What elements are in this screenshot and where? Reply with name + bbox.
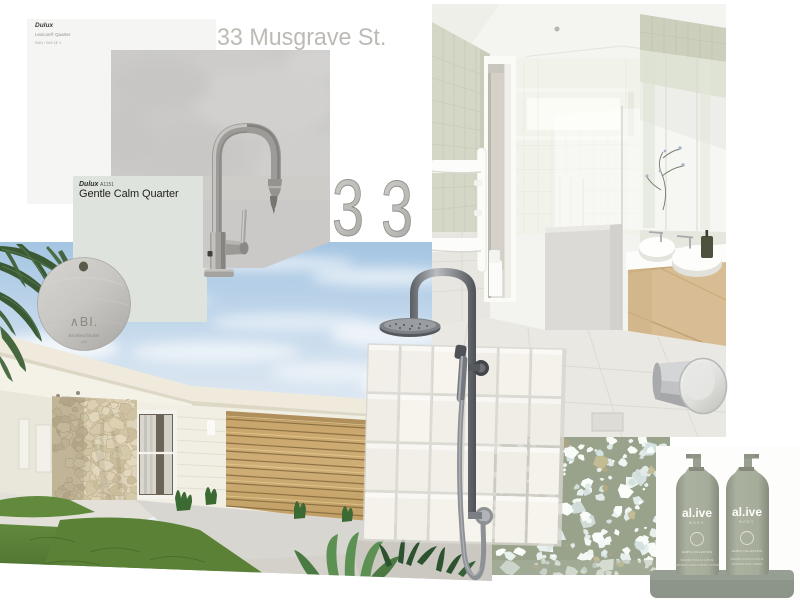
- svg-text:NATURAL BODY WASH: NATURAL BODY WASH: [732, 562, 762, 566]
- svg-text:EARTH COLLECTION: EARTH COLLECTION: [682, 550, 712, 554]
- svg-text:Brushed Nickel: Brushed Nickel: [69, 333, 100, 338]
- svg-text:KAKADU PLUM & LOTUS: KAKADU PLUM & LOTUS: [681, 558, 714, 562]
- svg-text:NATURAL HAND & BODY LOTION: NATURAL HAND & BODY LOTION: [675, 563, 719, 567]
- svg-text:Gentle Calm Quarter: Gentle Calm Quarter: [79, 188, 179, 200]
- svg-text:3: 3: [381, 164, 413, 254]
- svg-text:Lexicon® Quarter: Lexicon® Quarter: [35, 31, 71, 37]
- svg-text:BODY: BODY: [689, 521, 705, 525]
- svg-text:(d6): (d6): [81, 340, 87, 344]
- svg-text:∧BI.: ∧BI.: [70, 315, 98, 329]
- svg-text:Dulux: Dulux: [35, 22, 53, 29]
- svg-text:33 Musgrave St.: 33 Musgrave St.: [217, 23, 386, 51]
- svg-text:BODY: BODY: [739, 520, 755, 524]
- svg-text:3: 3: [332, 163, 364, 253]
- svg-text:SW1 / 9x9 1E 1: SW1 / 9x9 1E 1: [35, 41, 61, 45]
- svg-text:al.ive: al.ive: [682, 506, 712, 520]
- svg-text:al.ive: al.ive: [732, 505, 762, 519]
- svg-text:Dulux: Dulux: [79, 181, 100, 188]
- svg-text:EARTH COLLECTION: EARTH COLLECTION: [732, 549, 762, 553]
- svg-text:KAKADU PLUM & LOTUS: KAKADU PLUM & LOTUS: [731, 557, 764, 561]
